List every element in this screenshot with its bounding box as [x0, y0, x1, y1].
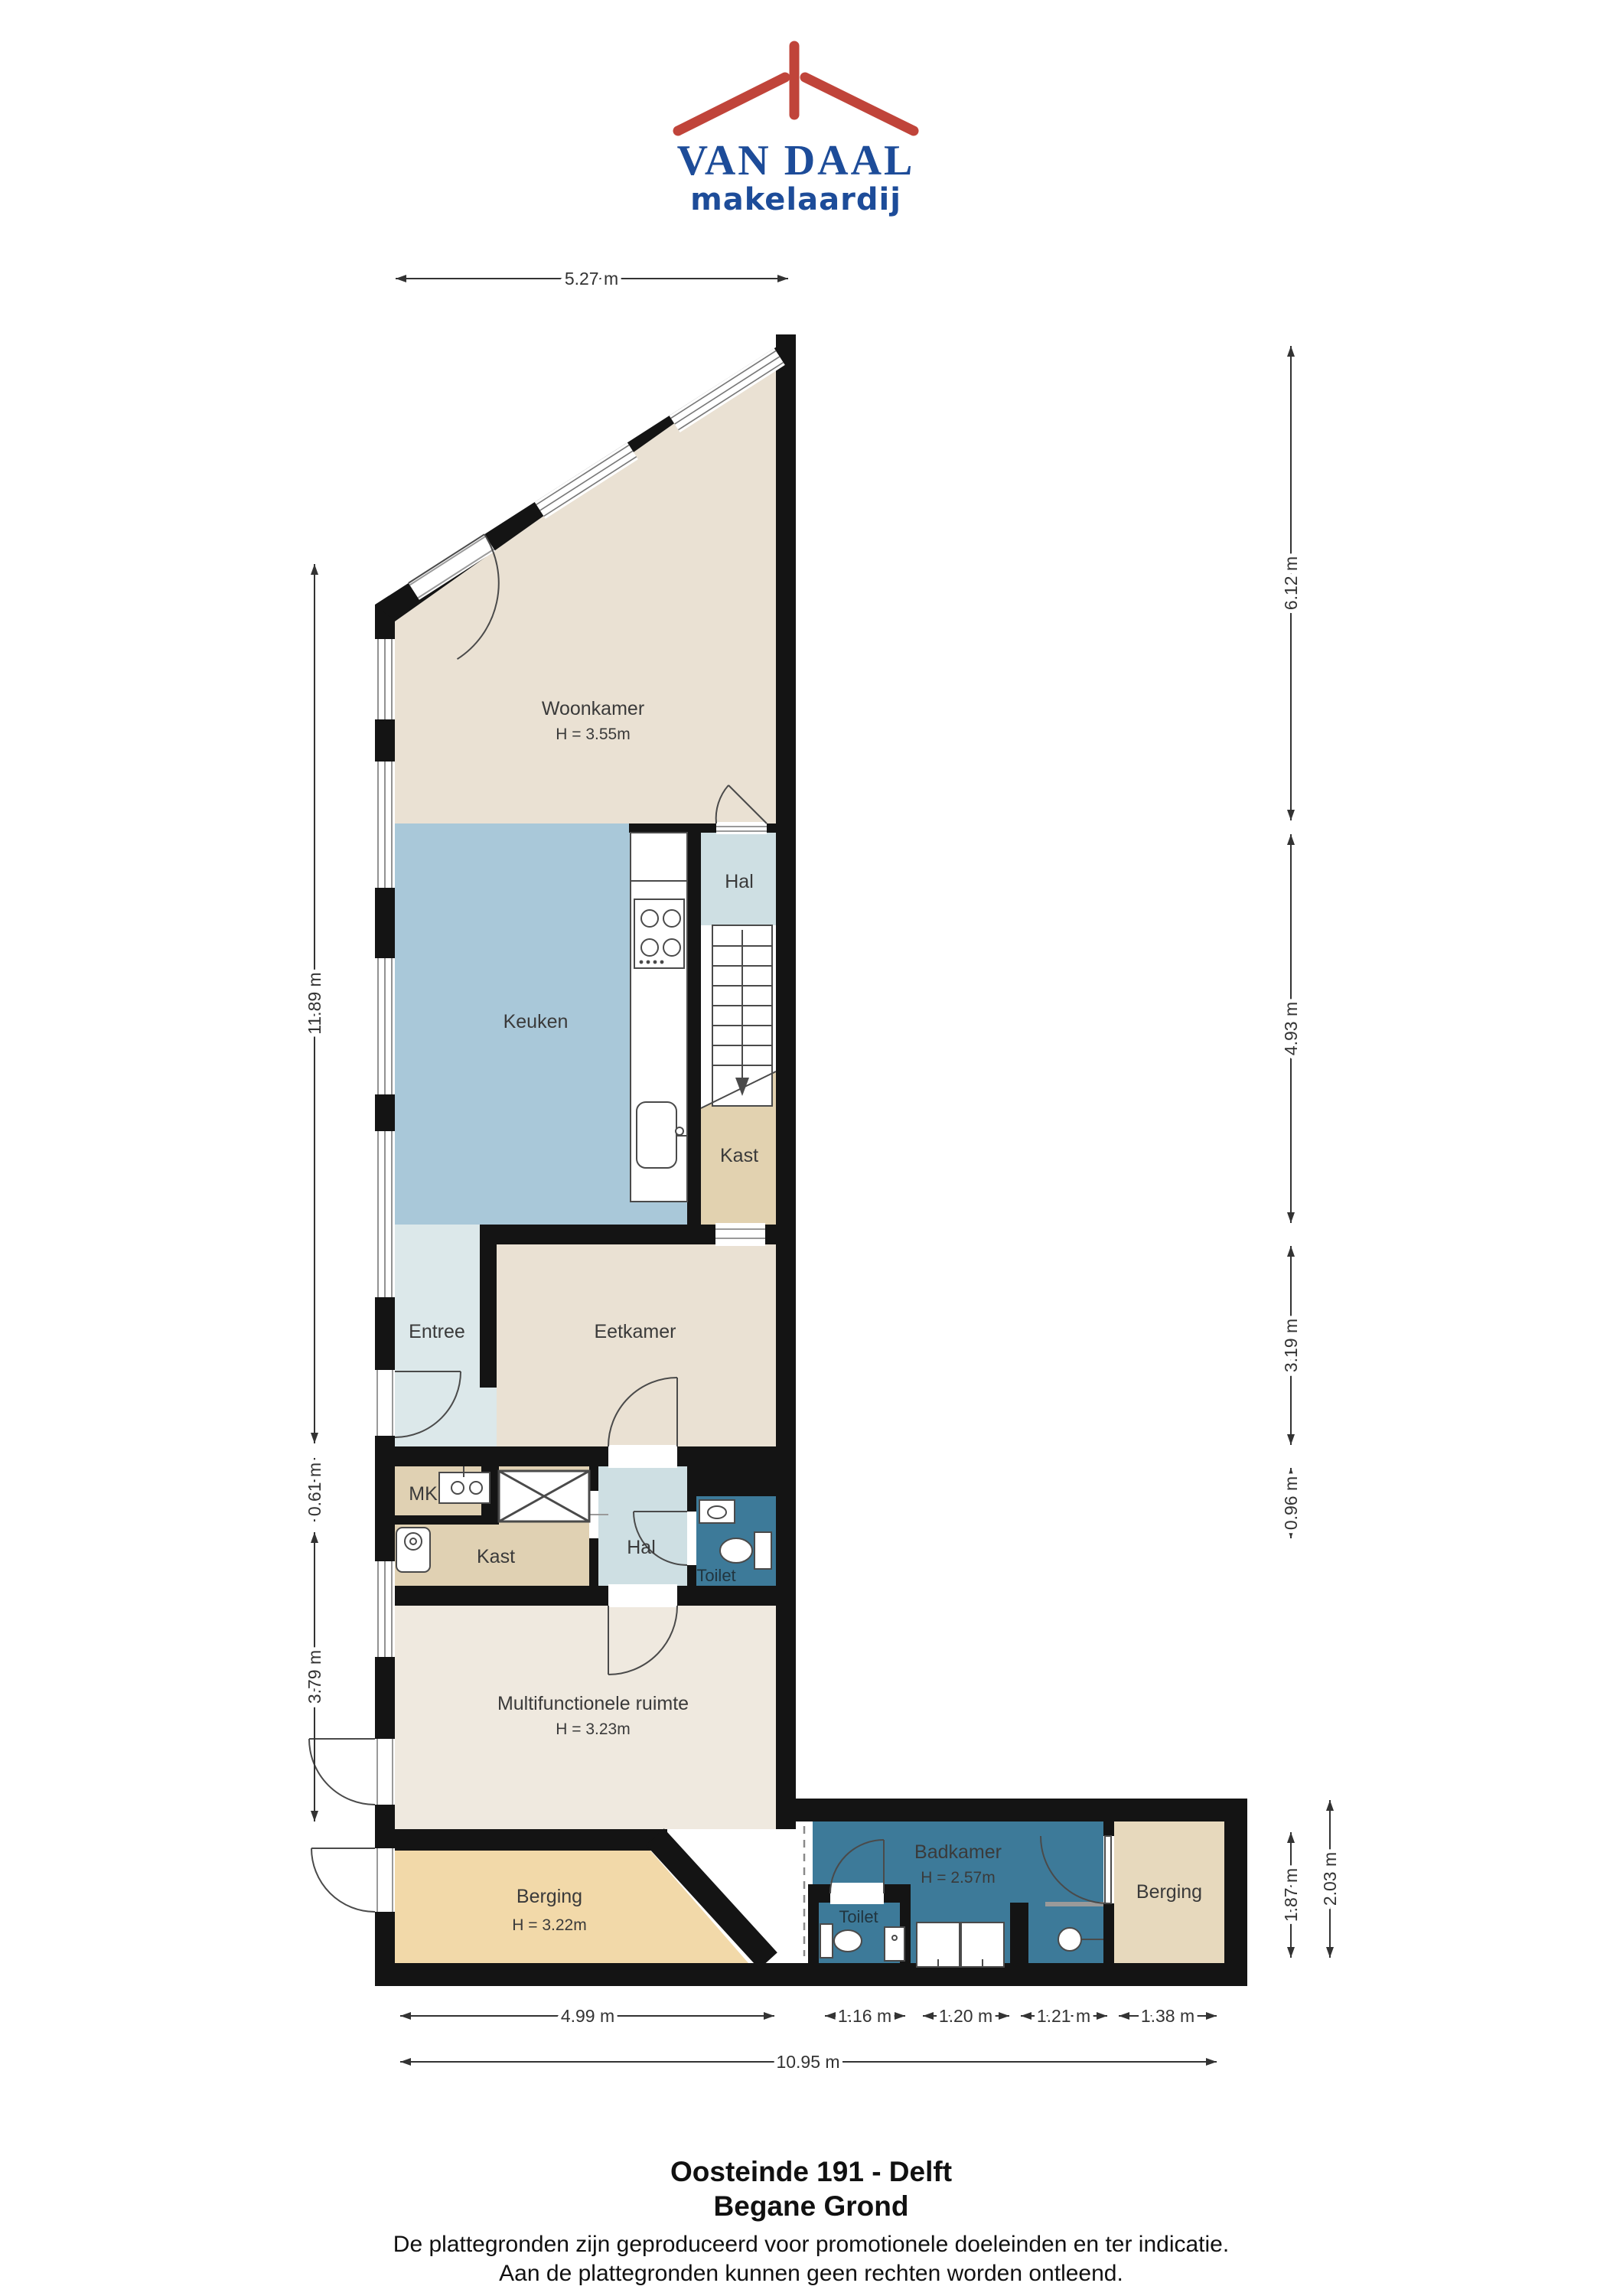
dim-right-3: 3.19 m — [1281, 1319, 1301, 1372]
label-eetkamer: Eetkamer — [595, 1321, 676, 1342]
label-berging-rechts: Berging — [1136, 1881, 1202, 1903]
room-hal-onder — [598, 1466, 687, 1586]
opening-kast-boven — [715, 1223, 765, 1246]
page-title-floor: Begane Grond — [714, 2190, 909, 2222]
logo-title: VAN DAAL — [677, 137, 915, 184]
dim-left-2: 0.61 m — [305, 1463, 324, 1516]
label-hal-boven: Hal — [725, 871, 754, 892]
door-berging-exterior — [311, 1848, 375, 1912]
dim-bottom-5: 1.38 m — [1141, 2006, 1194, 2026]
label-entree: Entree — [409, 1321, 465, 1342]
dim-left-3: 3.79 m — [305, 1650, 324, 1704]
label-multifunctionele-ruimte: Multifunctionele ruimte — [497, 1693, 689, 1714]
wall-hal-toilet-a — [687, 1496, 696, 1512]
door-multi-exterior — [309, 1739, 375, 1805]
dim-wing-2: 2.03 m — [1320, 1852, 1340, 1906]
agency-logo: VAN DAAL makelaardij — [677, 46, 915, 217]
dim-bottom-total: 10.95 m — [776, 2052, 839, 2072]
dim-bottom-3: 1.20 m — [939, 2006, 992, 2026]
logo-subtitle: makelaardij — [690, 182, 901, 217]
wall-right — [776, 334, 796, 1829]
label-toilet-hal: Toilet — [696, 1566, 735, 1585]
title-block: Oosteinde 191 - Delft Begane Grond De pl… — [393, 2156, 1229, 2286]
label-woonkamer: Woonkamer — [542, 698, 644, 719]
disclaimer-line-2: Aan de plattegronden kunnen geen rechten… — [499, 2261, 1123, 2286]
label-kast-onder: Kast — [477, 1546, 515, 1567]
wall-shower-stub — [1010, 1903, 1028, 1963]
dim-right-4: 0.96 m — [1281, 1476, 1301, 1530]
staircase — [701, 925, 776, 1108]
wall-multi-bottom — [375, 1829, 667, 1851]
label-toilet-achter: Toilet — [839, 1907, 878, 1926]
label-berging-links: Berging — [517, 1886, 582, 1907]
mk-sink-icon — [439, 1466, 490, 1503]
wall-wing-right — [1224, 1799, 1247, 1986]
entree-passage — [480, 1388, 497, 1446]
wall-wing-top — [796, 1799, 1247, 1821]
cabinet-icon — [885, 1927, 904, 1961]
label-keuken: Keuken — [504, 1011, 569, 1032]
wall-entree-eetkamer — [480, 1244, 497, 1388]
wall-bergingr-left-top — [1103, 1821, 1114, 1836]
opening-woonkamer-hal — [716, 822, 767, 834]
label-hal-onder: Hal — [627, 1537, 656, 1558]
washing-machine-icon — [917, 1923, 960, 1967]
floorplan-canvas: VAN DAAL makelaardij — [0, 0, 1623, 2296]
wall-hal-toilet-b — [687, 1565, 696, 1586]
dim-right-2: 4.93 m — [1281, 1002, 1301, 1055]
dim-top: 5.27 m — [565, 269, 618, 289]
wall-toilet-top — [687, 1466, 776, 1496]
roof-right-line — [805, 77, 914, 131]
room-fills — [395, 351, 1224, 1963]
label-badkamer-height: H = 2.57m — [921, 1869, 995, 1887]
water-heater-icon — [396, 1528, 430, 1572]
roof-icon — [678, 46, 914, 131]
page-title-address: Oosteinde 191 - Delft — [670, 2156, 952, 2187]
stove-icon — [634, 899, 684, 968]
label-badkamer: Badkamer — [914, 1841, 1002, 1863]
label-mk: MK — [409, 1483, 438, 1505]
dim-wing-1: 1.87 m — [1281, 1868, 1301, 1922]
opening-eetkamer-hal — [608, 1445, 677, 1468]
room-eetkamer — [497, 1244, 776, 1446]
label-woonkamer-height: H = 3.55m — [556, 726, 630, 743]
wall-counter-right — [687, 823, 701, 1244]
opening-hal-multi — [608, 1584, 677, 1607]
door-leaf-bergingr — [1105, 1836, 1111, 1903]
room-multifunctionele-ruimte — [395, 1606, 776, 1829]
dim-right-1: 6.12 m — [1281, 556, 1301, 610]
dim-bottom-2: 1.16 m — [838, 2006, 891, 2026]
dim-left-1: 11.89 m — [305, 972, 324, 1034]
label-kast-boven: Kast — [720, 1145, 758, 1166]
dim-bottom-4: 1.21 m — [1037, 2006, 1090, 2026]
wall-strip-bottom — [375, 1586, 776, 1606]
disclaimer-line-1: De plattegronden zijn geproduceerd voor … — [393, 2232, 1229, 2257]
label-berging-links-height: H = 3.22m — [512, 1916, 586, 1934]
wardrobe-cross-symbol — [499, 1471, 589, 1521]
wall-mk-divider — [395, 1515, 499, 1525]
wall-bergingr-left — [1103, 1903, 1114, 1963]
roof-left-line — [678, 77, 785, 131]
hand-basin-icon — [699, 1500, 735, 1523]
opening-toiletw — [830, 1883, 884, 1904]
dim-bottom-1: 4.99 m — [561, 2006, 614, 2026]
wall-strip-top — [375, 1446, 776, 1466]
label-multifunctionele-height: H = 3.23m — [556, 1720, 630, 1738]
wall-bottom — [375, 1963, 1247, 1986]
washing-machine-icon — [961, 1923, 1004, 1967]
room-woonkamer — [395, 351, 776, 823]
